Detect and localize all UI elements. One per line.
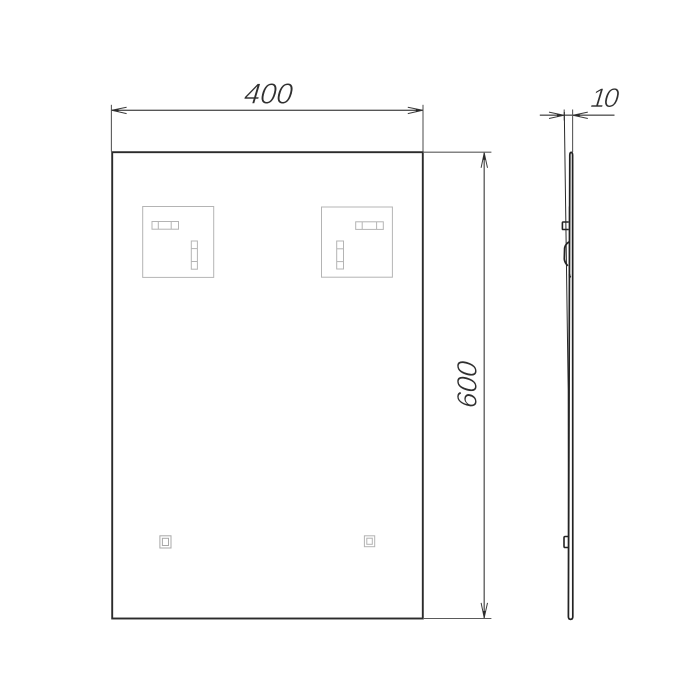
svg-text:400: 400 [243, 79, 295, 111]
svg-text:600: 600 [452, 359, 483, 409]
